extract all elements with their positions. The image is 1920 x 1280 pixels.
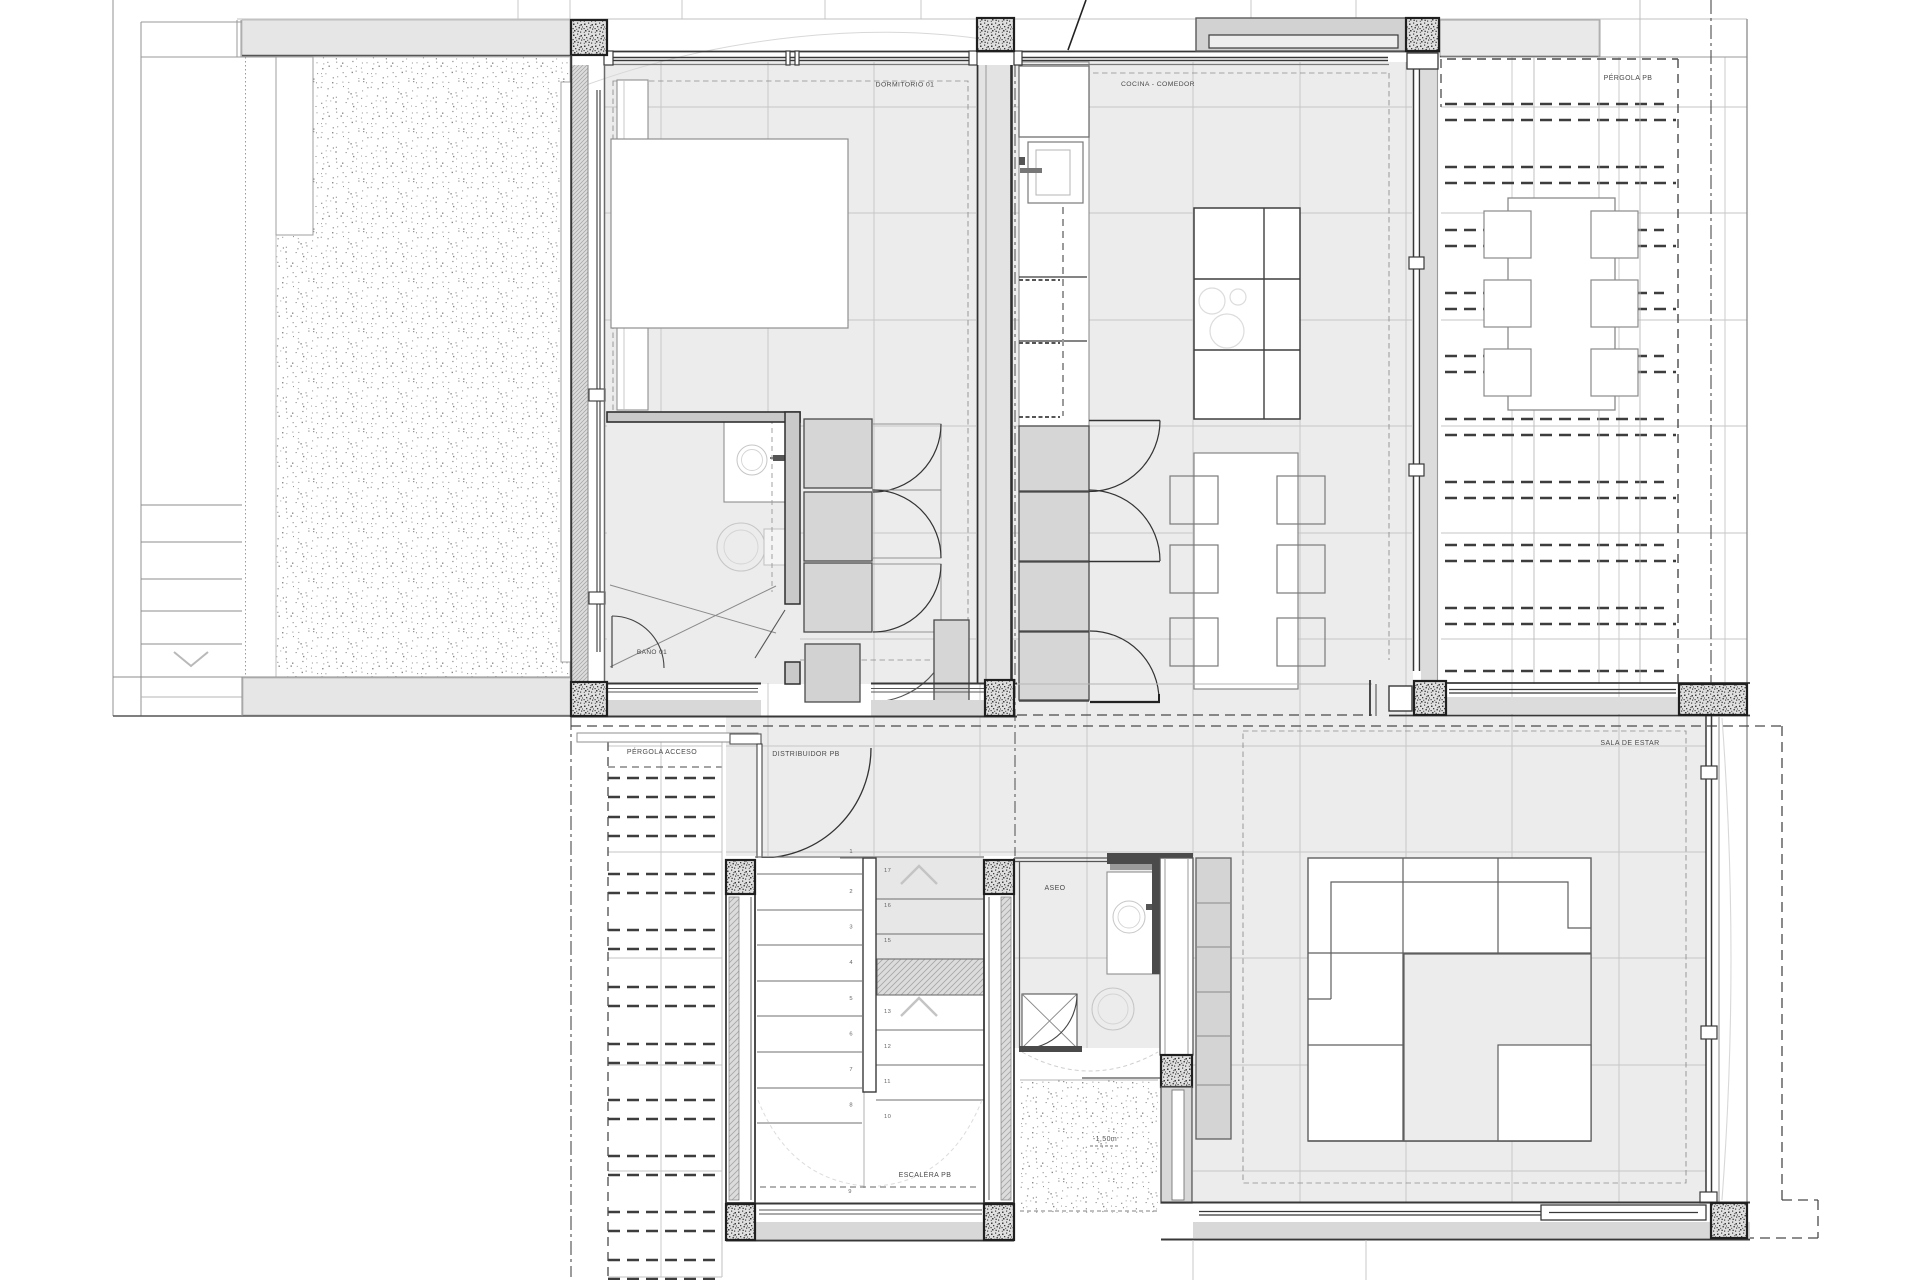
- svg-text:11: 11: [884, 1079, 891, 1085]
- svg-text:8: 8: [849, 1103, 853, 1109]
- svg-text:COCINA - COMEDOR: COCINA - COMEDOR: [1121, 81, 1195, 88]
- svg-text:BAÑO 01: BAÑO 01: [637, 647, 667, 656]
- svg-text:3: 3: [849, 925, 853, 931]
- svg-text:7: 7: [849, 1067, 853, 1073]
- svg-text:16: 16: [884, 903, 891, 909]
- svg-text:2: 2: [849, 889, 853, 895]
- svg-text:5: 5: [849, 996, 853, 1002]
- svg-text:PÉRGOLA PB: PÉRGOLA PB: [1604, 73, 1653, 82]
- svg-text:ASEO: ASEO: [1044, 885, 1065, 892]
- svg-text:12: 12: [884, 1044, 891, 1050]
- svg-text:ESCALERA PB: ESCALERA PB: [899, 1172, 952, 1179]
- svg-text:13: 13: [884, 1009, 891, 1015]
- svg-text:DISTRIBUIDOR PB: DISTRIBUIDOR PB: [772, 751, 839, 758]
- svg-text:9: 9: [848, 1189, 852, 1195]
- svg-text:15: 15: [884, 938, 891, 944]
- svg-text:17: 17: [884, 868, 891, 874]
- svg-text:SALA DE ESTAR: SALA DE ESTAR: [1600, 740, 1659, 747]
- svg-text:DORMITORIO 01: DORMITORIO 01: [876, 82, 935, 89]
- svg-text:10: 10: [884, 1114, 891, 1120]
- svg-text:1: 1: [849, 849, 853, 855]
- svg-text:4: 4: [849, 960, 853, 966]
- svg-text:PÉRGOLA ACCESO: PÉRGOLA ACCESO: [627, 747, 697, 756]
- svg-text:-1,50m: -1,50m: [1093, 1136, 1117, 1143]
- svg-text:6: 6: [849, 1031, 853, 1037]
